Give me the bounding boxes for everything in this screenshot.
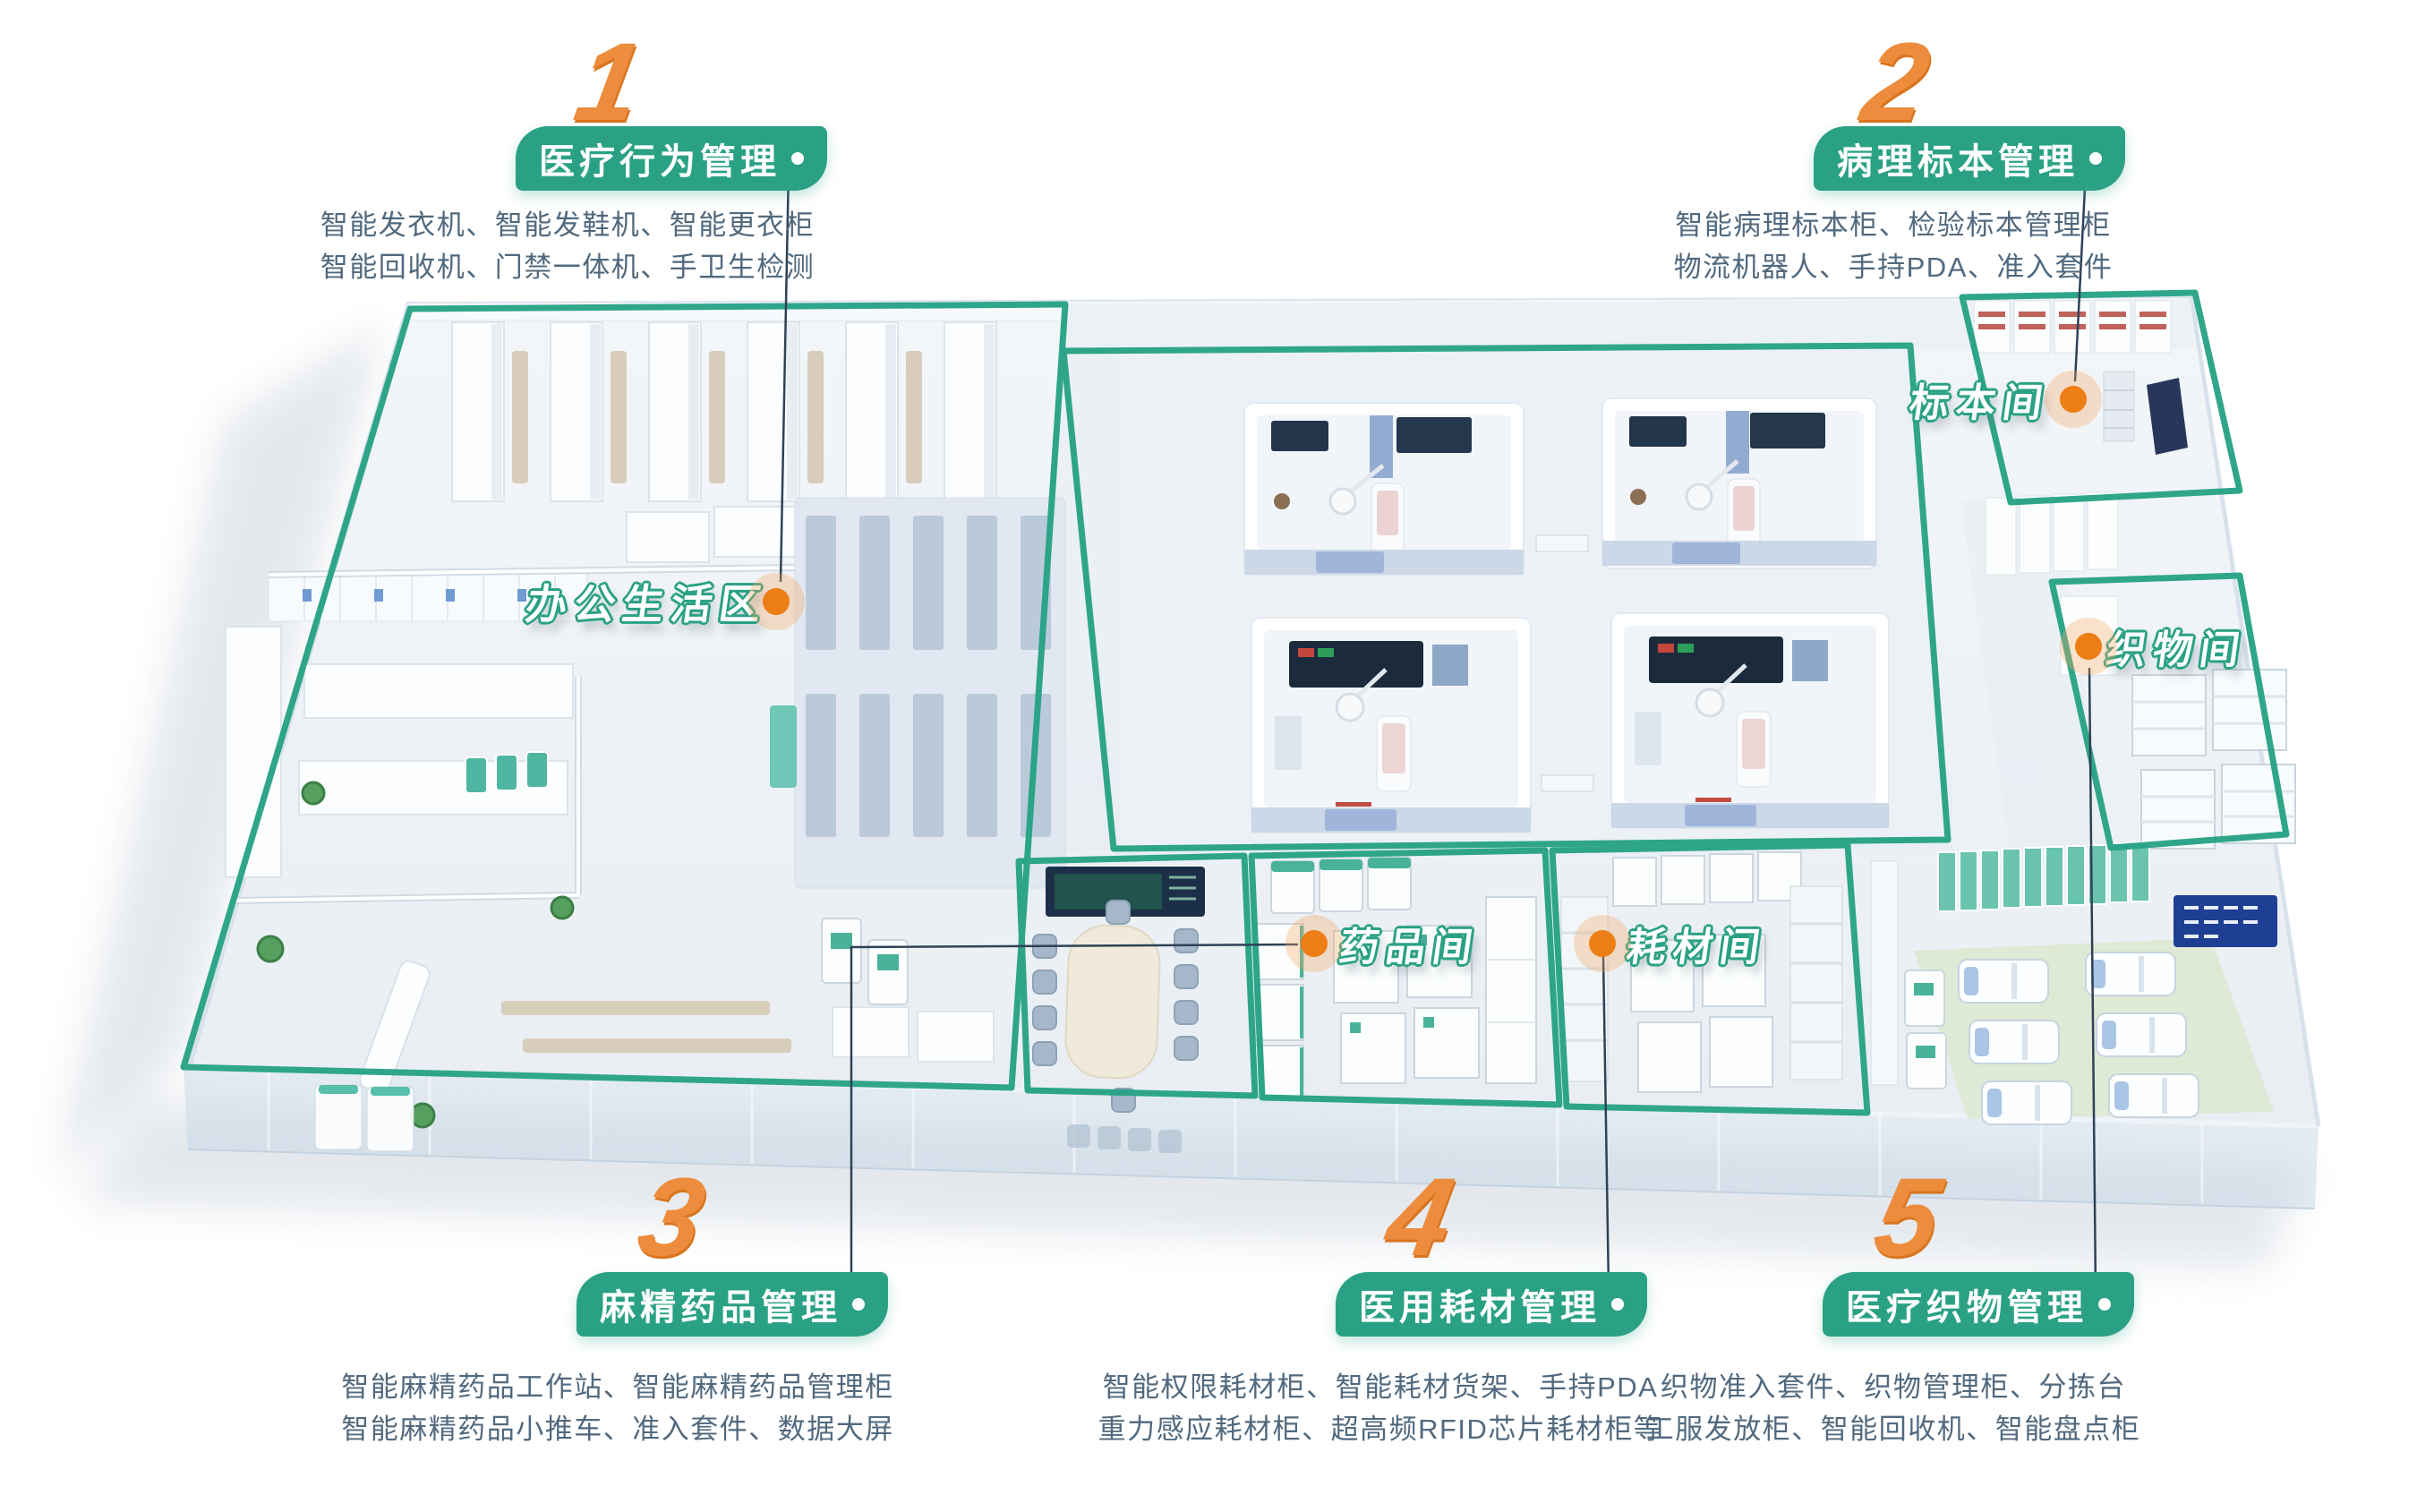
callout-5-desc-line-2: 工服发放柜、智能回收机、智能盘点柜: [1646, 1408, 2141, 1450]
callout-3-pill-dot: [852, 1298, 865, 1311]
callout-5-title-pill: 医疗织物管理: [1823, 1272, 2134, 1337]
callout-4-desc-line-2: 重力感应耗材柜、超高频RFID芯片耗材柜等: [1098, 1408, 1663, 1450]
callout-2-pill-dot: [2089, 152, 2102, 165]
callout-3-title: 麻精药品管理: [600, 1278, 841, 1330]
callout-4-pill-dot: [1611, 1298, 1624, 1311]
callout-2-desc-line-1: 智能病理标本柜、检验标本管理柜: [1674, 204, 2114, 246]
callout-1-title-pill: 医疗行为管理: [516, 126, 827, 191]
room-label-office: 办公生活区: [522, 572, 772, 631]
room-label-fabric: 织物间: [2104, 618, 2251, 675]
callout-1-description: 智能发衣机、智能发鞋机、智能更衣柜 智能回收机、门禁一体机、手卫生检测: [320, 204, 816, 288]
callout-2-title: 病理标本管理: [1837, 132, 2079, 184]
office-marker-dot: [763, 588, 790, 615]
callout-4-title: 医用耗材管理: [1359, 1278, 1601, 1330]
callout-3-desc-line-1: 智能麻精药品工作站、智能麻精药品管理柜: [341, 1366, 894, 1408]
callout-2-desc-line-2: 物流机器人、手持PDA、准入套件: [1674, 246, 2114, 288]
fabric-marker-dot: [2075, 633, 2102, 660]
callout-5-title: 医疗织物管理: [1846, 1278, 2088, 1330]
callout-1-pill-dot: [791, 152, 804, 165]
callout-4-title-pill: 医用耗材管理: [1336, 1272, 1647, 1337]
callout-4-desc-line-1: 智能权限耗材柜、智能耗材货架、手持PDA: [1098, 1366, 1663, 1408]
callout-3-title-pill: 麻精药品管理: [576, 1272, 888, 1337]
callout-1-title: 医疗行为管理: [539, 132, 781, 184]
callout-5-pill-dot: [2098, 1298, 2111, 1311]
drug-marker-dot: [1301, 930, 1328, 957]
room-label-specimen: 标本间: [1907, 371, 2054, 428]
callout-5-description: 织物准入套件、织物管理柜、分拣台 工服发放柜、智能回收机、智能盘点柜: [1646, 1366, 2141, 1450]
room-label-consumable: 耗材间: [1624, 915, 1772, 972]
callout-1-desc-line-1: 智能发衣机、智能发鞋机、智能更衣柜: [320, 204, 816, 246]
operating-room-suite: [1119, 346, 1948, 847]
room-label-drug: 药品间: [1337, 915, 1484, 972]
smart-hospital-infographic: 1 医疗行为管理 智能发衣机、智能发鞋机、智能更衣柜 智能回收机、门禁一体机、手…: [0, 0, 2417, 1512]
shower-block: [770, 498, 1065, 888]
callout-4-description: 智能权限耗材柜、智能耗材货架、手持PDA 重力感应耗材柜、超高频RFID芯片耗材…: [1098, 1366, 1663, 1450]
callout-5-desc-line-1: 织物准入套件、织物管理柜、分拣台: [1646, 1366, 2141, 1408]
callout-2-title-pill: 病理标本管理: [1814, 126, 2125, 191]
consumable-marker-dot: [1589, 930, 1616, 957]
specimen-marker-dot: [2060, 386, 2087, 413]
callout-2-description: 智能病理标本柜、检验标本管理柜 物流机器人、手持PDA、准入套件: [1674, 204, 2114, 288]
callout-1-desc-line-2: 智能回收机、门禁一体机、手卫生检测: [320, 246, 816, 288]
callout-3-desc-line-2: 智能麻精药品小推车、准入套件、数据大屏: [341, 1408, 894, 1450]
callout-3-description: 智能麻精药品工作站、智能麻精药品管理柜 智能麻精药品小推车、准入套件、数据大屏: [341, 1366, 894, 1450]
